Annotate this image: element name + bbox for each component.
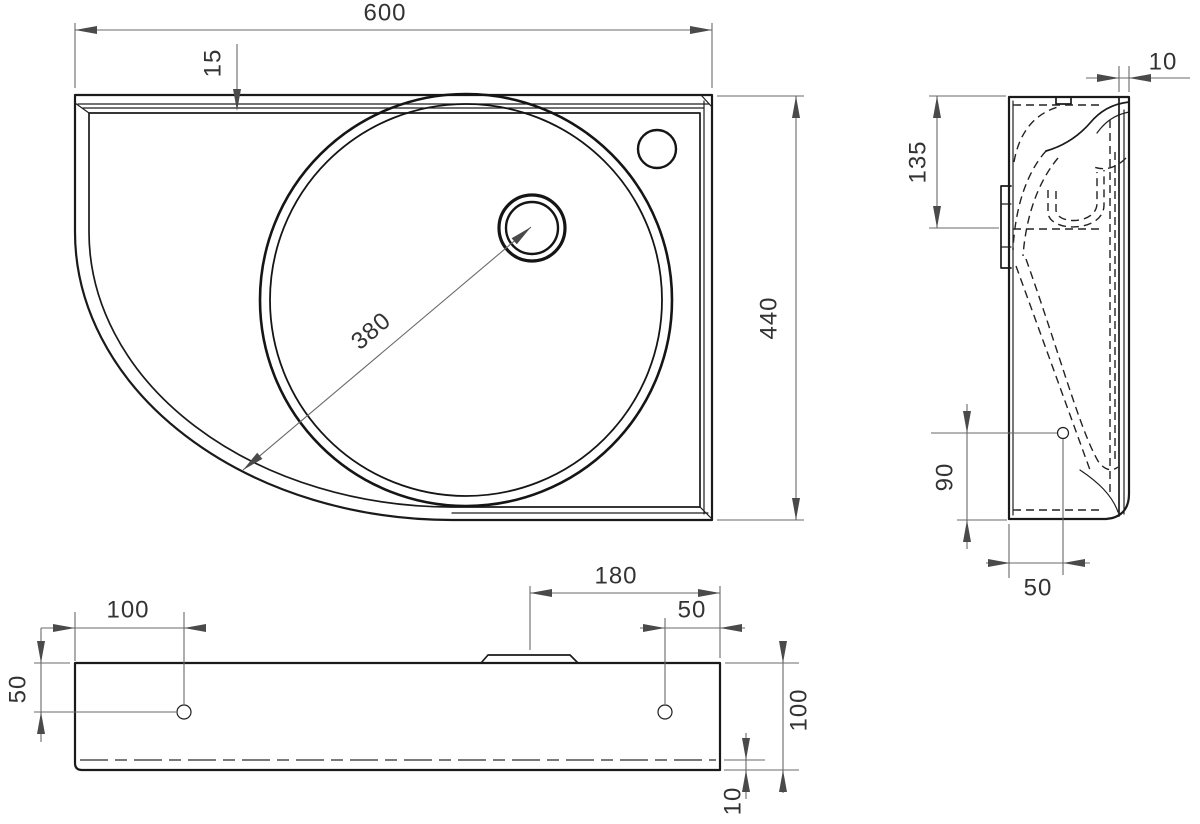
- plan-view: 600 15 440 380: [75, 0, 804, 520]
- front-view: 100 50 180 50 100 10: [4, 562, 812, 815]
- dim-left-hole-offset-text: 100: [106, 596, 149, 623]
- front-hole-left: [177, 705, 191, 719]
- side-hidden-bowl-2: [1023, 158, 1058, 256]
- dim-backsplash-depth: 15: [199, 44, 241, 111]
- dim-hole-from-bottom-text: 90: [931, 463, 958, 492]
- dim-hole-drop-text: 50: [4, 675, 31, 704]
- side-hidden-slope-1: [1016, 266, 1090, 470]
- dim-overall-width: 600: [75, 0, 712, 88]
- drain-circle-outer: [499, 195, 565, 261]
- side-hidden-trap-inner: [1056, 172, 1097, 220]
- dim-bracket-height: 135: [904, 96, 1006, 228]
- drawing-canvas: 600 15 440 380: [0, 0, 1200, 824]
- dim-basin-diameter-text: 380: [346, 307, 396, 355]
- side-rim-curl: [1046, 102, 1129, 151]
- dim-bracket-height-text: 135: [904, 140, 931, 183]
- dim-overall-depth: 440: [717, 96, 804, 520]
- basin-circle-inner: [270, 104, 662, 496]
- side-bottom-curve: [1080, 470, 1118, 512]
- dim-bottom-lip: 10: [719, 733, 765, 815]
- side-mounting-hole: [1058, 428, 1069, 439]
- dim-right-hole-offset-text: 50: [678, 596, 707, 623]
- dim-plan-depth-text: 440: [755, 296, 782, 339]
- dim-drain-offset-text: 180: [594, 562, 637, 589]
- dim-hole-drop: 50: [4, 628, 176, 742]
- dim-backsplash-text: 15: [199, 49, 226, 78]
- tap-hole: [638, 130, 676, 168]
- side-hidden-topcurve: [1014, 107, 1058, 162]
- dim-left-hole-offset: 100: [41, 596, 206, 704]
- dim-basin-diameter: 380: [243, 227, 531, 470]
- side-view: 10 135 90 50: [904, 48, 1190, 601]
- drain-circle-inner: [506, 202, 558, 254]
- front-drain-boss: [481, 655, 578, 663]
- dim-apron-height-text: 100: [785, 688, 812, 731]
- side-outline: [1009, 97, 1129, 519]
- dim-bottom-lip-text: 10: [719, 787, 746, 816]
- dim-side-hole-offset-text: 50: [1024, 574, 1053, 601]
- dim-right-hole-offset: 50: [640, 596, 745, 704]
- side-hidden-slope-2: [1026, 259, 1118, 470]
- dim-hole-from-bottom: 90: [931, 404, 1057, 549]
- dim-plan-width-text: 600: [363, 0, 406, 26]
- basin-circle-outer: [260, 94, 672, 506]
- side-hidden-bowl-1: [1013, 151, 1046, 250]
- front-outline: [75, 663, 720, 770]
- dim-front-rim-thickness: 10: [1086, 48, 1190, 92]
- sink-technical-drawing: 600 15 440 380: [0, 0, 1200, 824]
- front-hole-right: [658, 705, 672, 719]
- dim-rim-thickness-text: 10: [1149, 48, 1178, 75]
